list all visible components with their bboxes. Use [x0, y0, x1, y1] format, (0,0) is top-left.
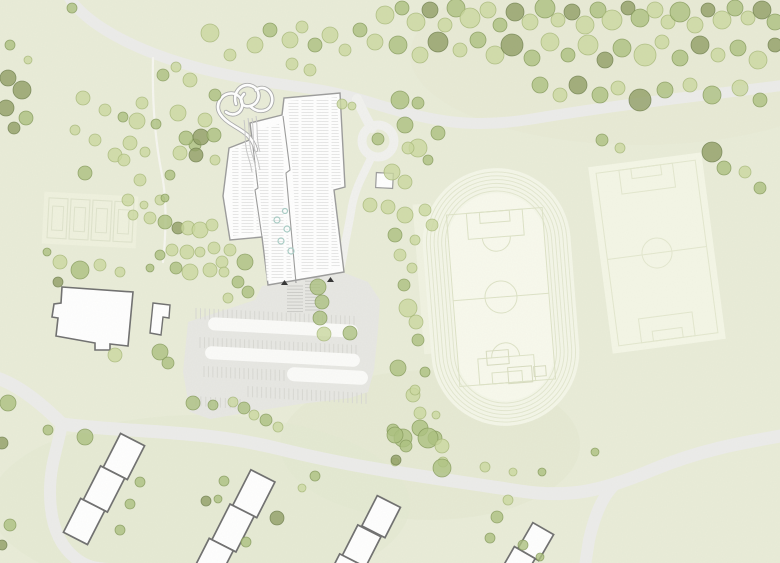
tree	[198, 113, 212, 127]
tree	[410, 385, 420, 395]
tree	[0, 100, 14, 116]
tree	[43, 425, 53, 435]
tree	[372, 133, 384, 145]
tree	[260, 414, 272, 426]
tree	[518, 540, 528, 550]
tree	[753, 1, 771, 19]
tree	[412, 334, 424, 346]
tree	[173, 146, 187, 160]
tree	[206, 219, 218, 231]
tree	[201, 496, 211, 506]
tree	[480, 462, 490, 472]
tree	[615, 143, 625, 153]
tree	[249, 410, 259, 420]
tree	[541, 33, 559, 51]
tree	[592, 87, 608, 103]
tree	[94, 259, 106, 271]
tree	[0, 540, 7, 550]
tree	[13, 81, 31, 99]
tree	[480, 2, 496, 18]
tree	[129, 113, 145, 129]
tree	[67, 3, 77, 13]
tree	[753, 93, 767, 107]
tree	[420, 367, 430, 377]
tree	[591, 448, 599, 456]
tree	[428, 32, 448, 52]
tree	[0, 70, 16, 86]
tree	[670, 2, 690, 22]
tree	[717, 161, 731, 175]
tree	[703, 86, 721, 104]
tree	[203, 263, 217, 277]
tree	[460, 8, 480, 28]
tree	[337, 99, 347, 109]
tree	[242, 286, 254, 298]
tree	[8, 122, 20, 134]
tree	[711, 48, 725, 62]
tree	[140, 147, 150, 157]
tree	[407, 263, 417, 273]
tree	[376, 6, 394, 24]
tree	[273, 422, 283, 432]
tree	[162, 357, 174, 369]
tree	[768, 38, 780, 52]
tree	[727, 0, 743, 16]
tree	[687, 17, 703, 33]
tree	[183, 73, 197, 87]
tree	[296, 21, 308, 33]
tree	[136, 97, 148, 109]
tree	[210, 155, 220, 165]
tree	[171, 62, 181, 72]
tree	[158, 215, 172, 229]
tree	[732, 80, 748, 96]
tree	[123, 136, 137, 150]
tree	[431, 126, 445, 140]
tree	[412, 97, 424, 109]
tree	[655, 35, 669, 49]
tree	[53, 277, 63, 287]
tree	[453, 43, 467, 57]
tree	[282, 32, 298, 48]
tree	[298, 484, 306, 492]
tree	[0, 395, 16, 411]
tree	[407, 13, 425, 31]
tree	[363, 198, 377, 212]
tree	[470, 32, 486, 48]
tree	[313, 311, 327, 325]
tree	[553, 88, 567, 102]
tree	[409, 315, 423, 329]
tree	[410, 235, 420, 245]
tree	[180, 245, 194, 259]
tree	[118, 112, 128, 122]
tree	[70, 125, 80, 135]
tree	[118, 154, 130, 166]
tree	[569, 76, 587, 94]
tree	[170, 262, 182, 274]
tree	[749, 51, 767, 69]
tree	[193, 129, 209, 145]
tree	[402, 142, 414, 154]
tree	[395, 1, 409, 15]
tree	[165, 170, 175, 180]
tree	[701, 3, 715, 17]
tree	[77, 429, 93, 445]
tree	[394, 249, 406, 261]
tree	[315, 295, 329, 309]
tree	[432, 411, 440, 419]
tree	[78, 166, 92, 180]
tree	[672, 50, 688, 66]
tree	[89, 134, 101, 146]
tree	[348, 102, 356, 110]
tree	[201, 24, 219, 42]
tree	[426, 219, 438, 231]
tree	[223, 293, 233, 303]
tree	[209, 89, 221, 101]
tree	[4, 519, 16, 531]
tree	[322, 27, 338, 43]
tree	[538, 468, 546, 476]
tree	[391, 455, 401, 465]
tree	[71, 261, 89, 279]
tree	[219, 267, 229, 277]
tree	[596, 134, 608, 146]
tree	[115, 525, 125, 535]
tree	[228, 397, 238, 407]
tree	[186, 396, 200, 410]
tree	[151, 119, 161, 129]
tree	[387, 427, 403, 443]
tree	[207, 128, 221, 142]
tree	[310, 471, 320, 481]
tree	[214, 495, 222, 503]
tree	[683, 78, 697, 92]
tree	[657, 82, 673, 98]
tree	[310, 279, 326, 295]
tree	[208, 242, 220, 254]
tree	[730, 40, 746, 56]
tree	[237, 254, 253, 270]
tree	[400, 440, 412, 452]
tree	[19, 111, 33, 125]
tree	[551, 13, 565, 27]
tree	[391, 91, 409, 109]
tree	[270, 511, 284, 525]
tree	[399, 299, 417, 317]
tree	[422, 2, 438, 18]
tree	[5, 40, 15, 50]
tree	[232, 276, 244, 288]
tree	[182, 264, 198, 280]
tree	[108, 348, 122, 362]
tree	[343, 326, 357, 340]
tree	[189, 148, 203, 162]
tree	[503, 495, 513, 505]
tree	[122, 194, 134, 206]
tree	[493, 18, 507, 32]
tree	[611, 81, 625, 95]
tree	[509, 468, 517, 476]
tree	[339, 44, 351, 56]
tree	[398, 175, 412, 189]
tree	[308, 38, 322, 52]
tree	[561, 48, 575, 62]
tree	[208, 400, 218, 410]
tree	[435, 439, 449, 453]
tree	[501, 34, 523, 56]
tree	[384, 164, 400, 180]
tree	[485, 533, 495, 543]
tree	[161, 194, 169, 202]
tree	[522, 14, 538, 30]
tree	[390, 360, 406, 376]
tree	[179, 131, 193, 145]
tree	[767, 14, 780, 30]
tree	[24, 56, 32, 64]
tree	[224, 244, 236, 256]
tree	[304, 64, 316, 76]
tree	[166, 244, 178, 256]
soccer-field-east	[588, 152, 726, 353]
tree	[247, 37, 263, 53]
tree	[433, 459, 451, 477]
tree	[367, 34, 383, 50]
tree	[524, 50, 540, 66]
tree	[647, 2, 663, 18]
tree	[602, 10, 622, 30]
tree	[739, 166, 751, 178]
tree	[423, 155, 433, 165]
tree	[506, 3, 524, 21]
site-plan	[0, 0, 780, 563]
tree	[140, 201, 148, 209]
tree	[535, 0, 555, 18]
tree	[412, 47, 428, 63]
tree	[144, 212, 156, 224]
tree	[76, 91, 90, 105]
tree	[713, 11, 731, 29]
tree	[397, 117, 413, 133]
tree	[629, 89, 651, 111]
tree	[691, 36, 709, 54]
tree	[155, 250, 165, 260]
tree	[438, 18, 452, 32]
tree	[576, 16, 594, 34]
tree	[317, 327, 331, 341]
tree	[241, 537, 251, 547]
tree	[353, 23, 367, 37]
tree	[238, 402, 250, 414]
tree	[286, 58, 298, 70]
tree	[192, 222, 208, 238]
tree	[115, 267, 125, 277]
tree	[397, 207, 413, 223]
tree	[389, 36, 407, 54]
tree	[536, 553, 544, 561]
tree	[741, 11, 755, 25]
tree	[0, 437, 8, 449]
tree	[702, 142, 722, 162]
tree	[754, 182, 766, 194]
tree	[263, 23, 277, 37]
tree	[631, 9, 649, 27]
tree	[43, 248, 51, 256]
tree	[128, 210, 138, 220]
tree	[414, 407, 426, 419]
tree	[216, 256, 228, 268]
tree	[578, 35, 598, 55]
tree	[134, 174, 146, 186]
tree	[419, 204, 431, 216]
tree	[532, 77, 548, 93]
tree	[597, 52, 613, 68]
tree	[491, 511, 503, 523]
tree	[146, 264, 154, 272]
tree	[381, 200, 395, 214]
tree	[398, 279, 410, 291]
tree	[170, 105, 186, 121]
tree	[613, 39, 631, 57]
tree	[634, 44, 656, 66]
tree	[135, 477, 145, 487]
tree	[99, 104, 111, 116]
tree	[224, 49, 236, 61]
tree	[388, 228, 402, 242]
tree	[195, 247, 205, 257]
tree	[157, 69, 169, 81]
site-plan-canvas	[0, 0, 780, 563]
tree	[219, 476, 229, 486]
tree	[564, 4, 580, 20]
tree	[53, 255, 67, 269]
tree	[125, 499, 135, 509]
